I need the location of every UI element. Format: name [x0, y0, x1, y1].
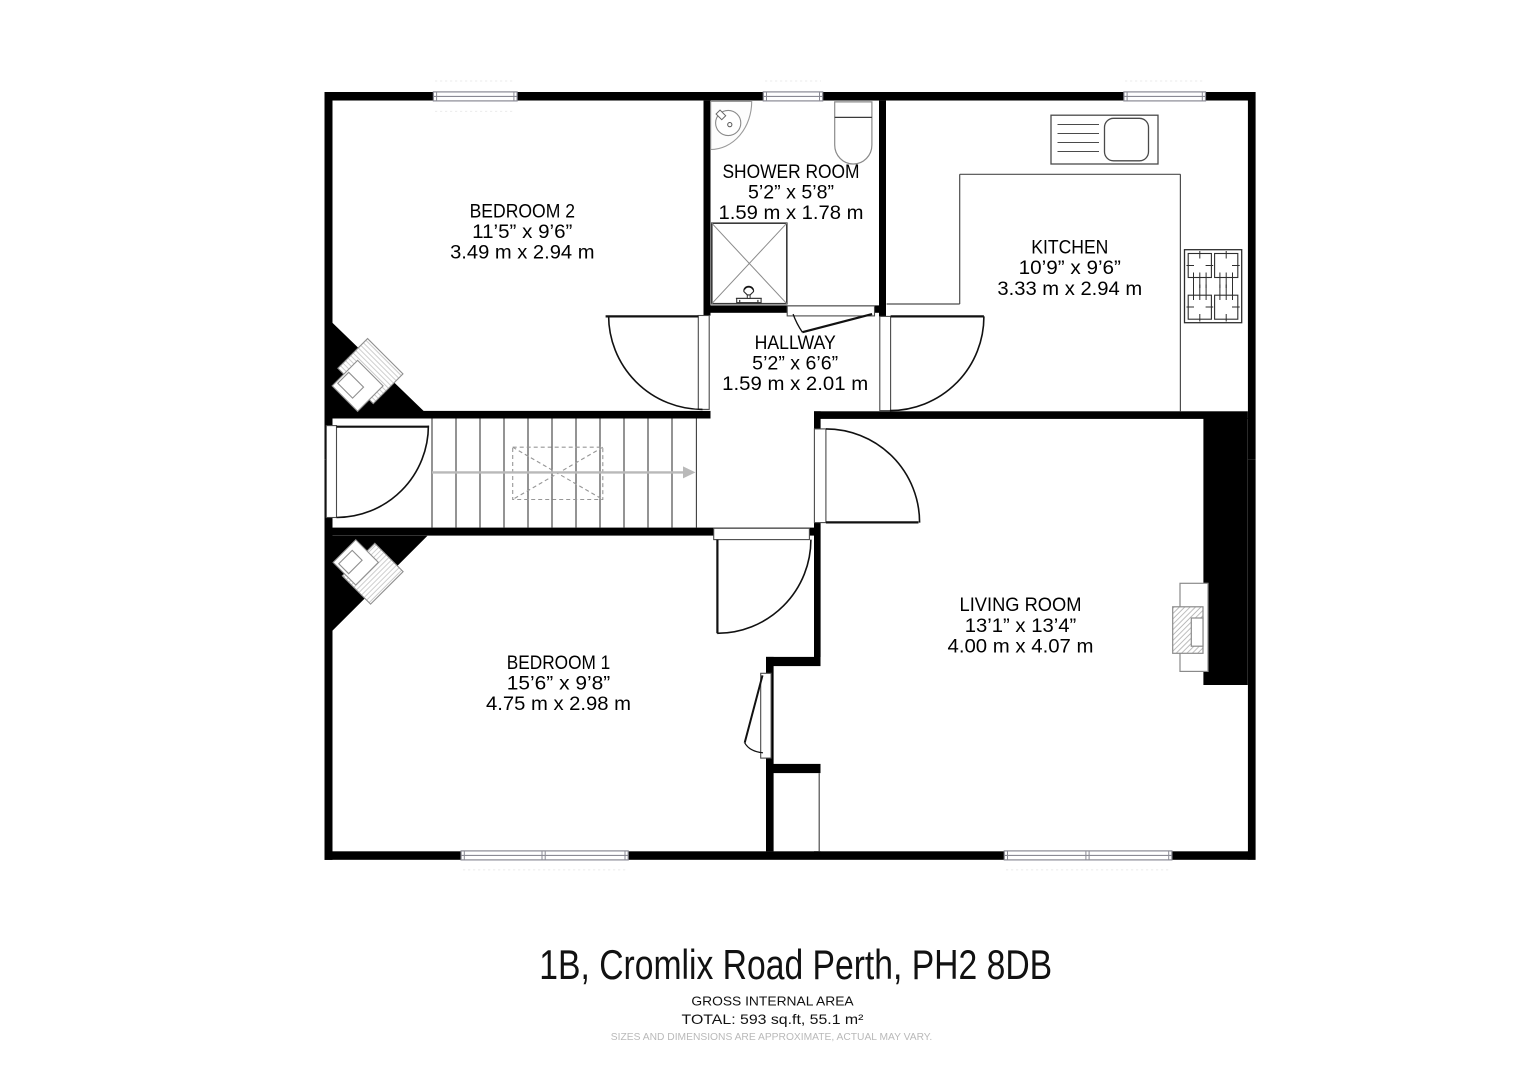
svg-text:4.75 m x 2.98 m: 4.75 m x 2.98 m: [486, 694, 631, 715]
svg-text:4.00 m x 4.07 m: 4.00 m x 4.07 m: [948, 636, 1094, 657]
svg-text:BEDROOM 1: BEDROOM 1: [507, 653, 611, 674]
svg-text:HALLWAY: HALLWAY: [755, 333, 837, 354]
svg-text:1.59 m x 1.78 m: 1.59 m x 1.78 m: [719, 203, 864, 224]
svg-text:15’6” x 9’8”: 15’6” x 9’8”: [507, 674, 611, 695]
svg-text:13’1” x 13’4”: 13’1” x 13’4”: [965, 616, 1077, 637]
svg-text:TOTAL: 593 sq.ft, 55.1 m²: TOTAL: 593 sq.ft, 55.1 m²: [682, 1012, 864, 1027]
svg-text:BEDROOM 2: BEDROOM 2: [470, 202, 575, 223]
svg-text:GROSS INTERNAL AREA: GROSS INTERNAL AREA: [691, 993, 854, 1008]
svg-text:SIZES AND DIMENSIONS ARE APPRO: SIZES AND DIMENSIONS ARE APPROXIMATE, AC…: [611, 1031, 932, 1043]
svg-text:3.49 m x 2.94 m: 3.49 m x 2.94 m: [450, 243, 594, 264]
svg-text:KITCHEN: KITCHEN: [1031, 238, 1108, 259]
svg-text:3.33 m x 2.94 m: 3.33 m x 2.94 m: [997, 279, 1142, 300]
svg-text:5’2” x 6’6”: 5’2” x 6’6”: [752, 354, 838, 375]
svg-text:SHOWER ROOM: SHOWER ROOM: [722, 162, 859, 183]
svg-text:11’5” x 9’6”: 11’5” x 9’6”: [472, 222, 572, 243]
svg-text:LIVING ROOM: LIVING ROOM: [960, 595, 1082, 616]
svg-text:1B, Cromlix Road Perth, PH2 8D: 1B, Cromlix Road Perth, PH2 8DB: [539, 941, 1052, 988]
svg-text:5’2” x 5’8”: 5’2” x 5’8”: [748, 183, 834, 204]
svg-text:1.59 m x 2.01 m: 1.59 m x 2.01 m: [722, 374, 868, 395]
svg-text:10’9” x 9’6”: 10’9” x 9’6”: [1019, 258, 1121, 279]
